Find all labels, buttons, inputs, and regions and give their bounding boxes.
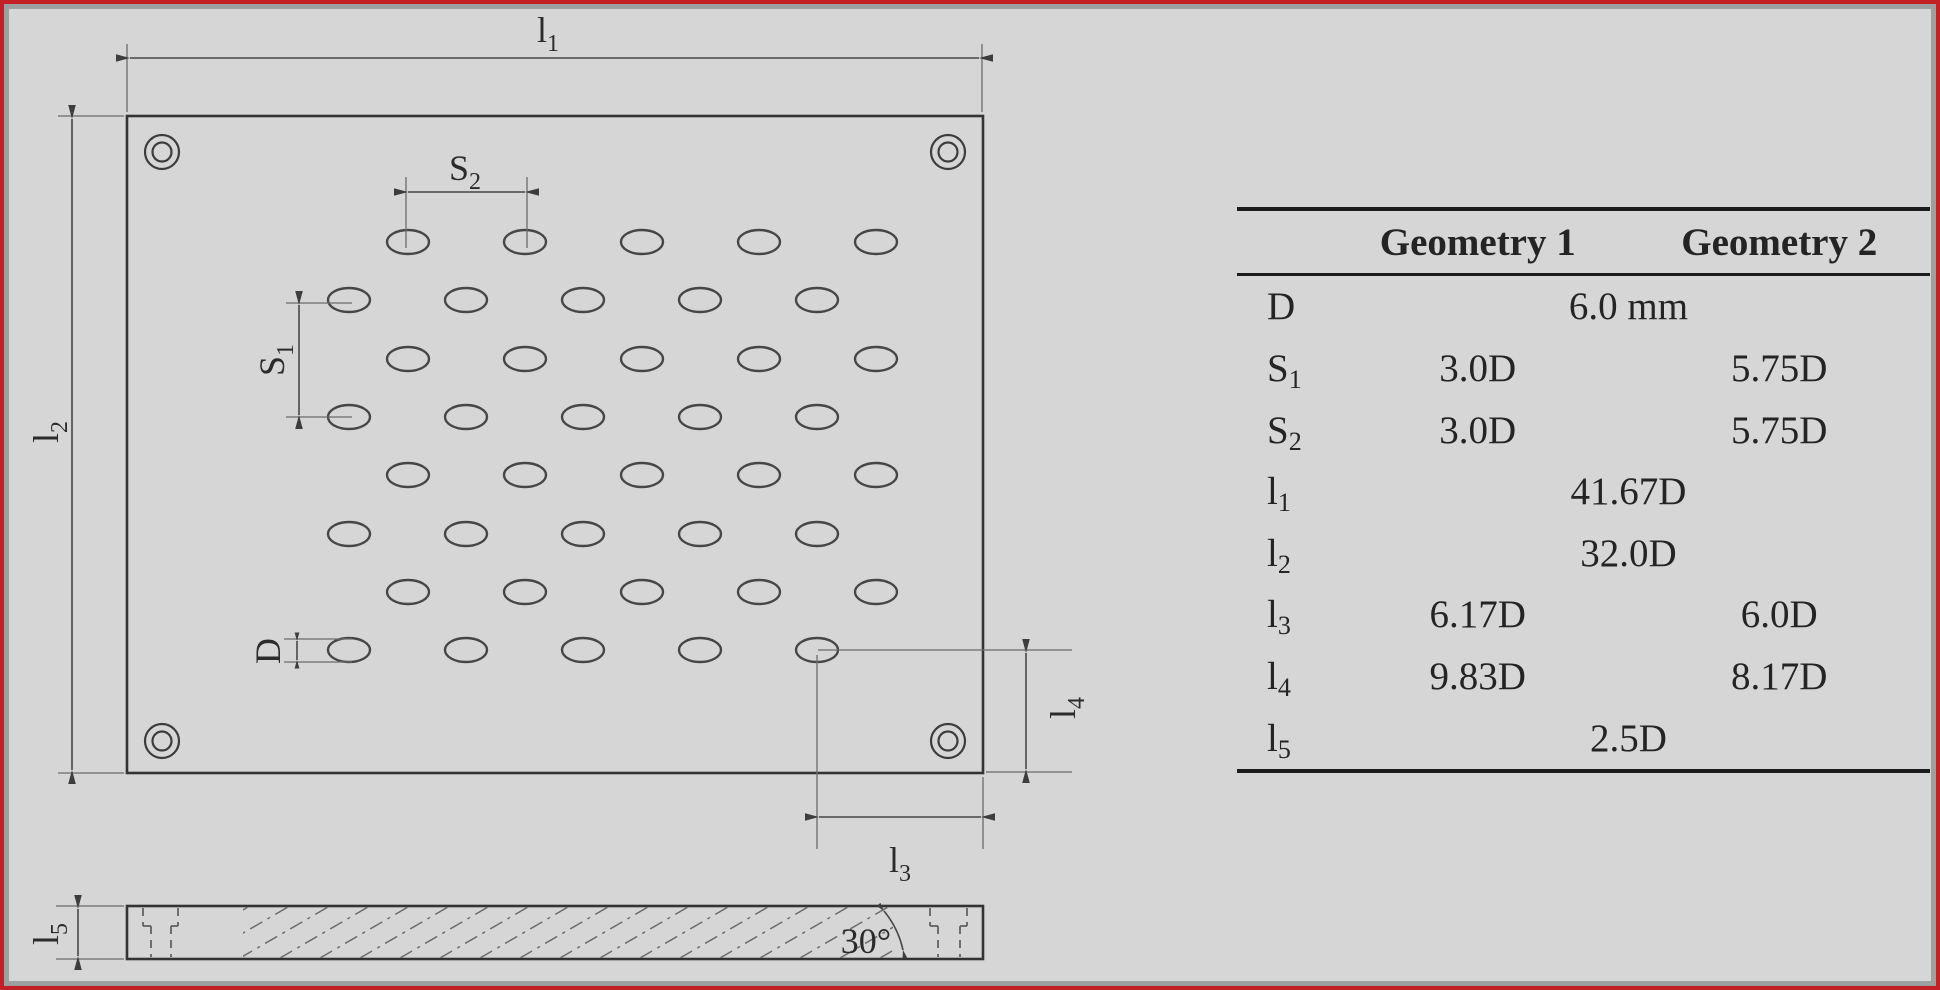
dim-l4: l4 — [818, 650, 1090, 772]
corner-hole-top-left — [145, 135, 179, 169]
value-span: 41.67D — [1327, 469, 1930, 514]
dim-label-l1: l1 — [537, 10, 559, 57]
table-row: l5 2.5D — [1237, 707, 1930, 769]
dim-label-l2: l2 — [26, 421, 73, 443]
param-label: D — [1237, 284, 1327, 329]
hatch-line — [400, 907, 488, 958]
countersink-right — [930, 908, 967, 957]
dim-label-l4: l4 — [1043, 697, 1090, 719]
value-geometry-1: 3.0D — [1327, 408, 1629, 453]
plate-hole — [679, 522, 721, 546]
hatch-line — [240, 907, 328, 958]
table-row: l4 9.83D 8.17D — [1237, 646, 1930, 708]
plate-hole — [562, 638, 604, 662]
plate-hole — [387, 230, 429, 254]
plate-hole — [504, 347, 546, 371]
header-geometry-1: Geometry 1 — [1327, 220, 1629, 265]
plate-hole — [445, 405, 487, 429]
technical-drawing: l1 l2 S2 S1 — [0, 0, 1120, 990]
plate-hole — [738, 347, 780, 371]
plate-hole — [504, 230, 546, 254]
figure-frame: l1 l2 S2 S1 — [0, 0, 1940, 990]
dim-l1: l1 — [127, 10, 982, 112]
hatch-line — [440, 907, 528, 958]
dim-label-s2: S2 — [449, 148, 481, 195]
hatch-line — [200, 907, 288, 958]
plate-hole — [562, 522, 604, 546]
plate-hole — [387, 463, 429, 487]
hatch-line — [640, 907, 728, 958]
param-label: l5 — [1237, 716, 1327, 761]
dim-label-s1: S1 — [252, 344, 299, 376]
plate-hole — [679, 638, 721, 662]
dim-l5: l5 — [26, 906, 124, 959]
param-label: l4 — [1237, 654, 1327, 699]
plate-hole — [679, 288, 721, 312]
plate-hole — [855, 580, 897, 604]
plate-hole — [679, 405, 721, 429]
value-geometry-1: 9.83D — [1327, 654, 1629, 699]
table-row: l3 6.17D 6.0D — [1237, 584, 1930, 646]
value-span: 6.0 mm — [1327, 284, 1930, 329]
hatch-line — [600, 907, 688, 958]
plate-hole — [855, 347, 897, 371]
hatch-line — [720, 907, 808, 958]
corner-hole-bottom-left — [145, 724, 179, 758]
hatch-line — [520, 907, 608, 958]
hatch-line — [760, 907, 848, 958]
hatch-line — [680, 907, 768, 958]
hatch-line — [160, 907, 248, 958]
plate-hole — [328, 288, 370, 312]
countersink-left — [143, 908, 178, 957]
plate-hole — [738, 463, 780, 487]
plate-hole — [504, 580, 546, 604]
plate-hole — [445, 522, 487, 546]
dim-label-d: D — [248, 638, 288, 664]
plate-hole — [855, 463, 897, 487]
angle-annotation: 30° — [841, 911, 903, 961]
plate-hole — [328, 522, 370, 546]
plate-hole — [387, 347, 429, 371]
table-header-row: Geometry 1 Geometry 2 — [1237, 211, 1930, 276]
value-geometry-2: 5.75D — [1629, 408, 1931, 453]
plate-hole — [562, 288, 604, 312]
table-body: D 6.0 mm S1 3.0D 5.75D S2 3.0D 5.75D l1 … — [1237, 276, 1930, 769]
dim-s1: S1 — [252, 303, 352, 417]
dim-label-l3: l3 — [889, 840, 911, 887]
dim-label-l5: l5 — [26, 923, 73, 945]
corner-hole-top-right — [931, 135, 965, 169]
value-geometry-1: 6.17D — [1327, 592, 1629, 637]
hatch-line — [880, 907, 968, 958]
value-geometry-1: 3.0D — [1327, 346, 1629, 391]
plate-hole — [621, 230, 663, 254]
plate-hole — [387, 580, 429, 604]
plate-hole — [621, 580, 663, 604]
param-label: S1 — [1237, 346, 1327, 391]
plate-hole — [445, 288, 487, 312]
param-label: l3 — [1237, 592, 1327, 637]
plate-hole — [445, 638, 487, 662]
angle-label: 30° — [841, 921, 891, 961]
plate-hole — [796, 288, 838, 312]
header-geometry-2: Geometry 2 — [1629, 220, 1931, 265]
table-row: D 6.0 mm — [1237, 276, 1930, 338]
plate-hole — [328, 638, 370, 662]
dim-l2: l2 — [26, 116, 124, 773]
plate-hole — [504, 463, 546, 487]
value-geometry-2: 5.75D — [1629, 346, 1931, 391]
plate-hole — [621, 463, 663, 487]
param-label: l1 — [1237, 469, 1327, 514]
value-geometry-2: 6.0D — [1629, 592, 1931, 637]
plate-hole — [562, 405, 604, 429]
table-row: l1 41.67D — [1237, 461, 1930, 523]
hatch-line — [560, 907, 648, 958]
param-label: S2 — [1237, 408, 1327, 453]
plate-outline — [127, 116, 983, 773]
param-label: l2 — [1237, 531, 1327, 576]
corner-hole-bottom-right — [931, 724, 965, 758]
table-row: l2 32.0D — [1237, 523, 1930, 585]
hatch-line — [280, 907, 368, 958]
hole-grid — [328, 230, 897, 662]
plate-hole — [796, 522, 838, 546]
geometry-table: Geometry 1 Geometry 2 D 6.0 mm S1 3.0D 5… — [1237, 207, 1930, 773]
value-span: 2.5D — [1327, 716, 1930, 761]
plate-hole — [796, 405, 838, 429]
hatch-line — [320, 907, 408, 958]
table-row: S1 3.0D 5.75D — [1237, 338, 1930, 400]
dim-l3: l3 — [817, 655, 983, 887]
plate-hole — [855, 230, 897, 254]
value-span: 32.0D — [1327, 531, 1930, 576]
hatch-line — [480, 907, 568, 958]
plate-hole — [738, 580, 780, 604]
hatch-line — [360, 907, 448, 958]
table-row: S2 3.0D 5.75D — [1237, 399, 1930, 461]
plate-hole — [621, 347, 663, 371]
plate-hole — [738, 230, 780, 254]
value-geometry-2: 8.17D — [1629, 654, 1931, 699]
